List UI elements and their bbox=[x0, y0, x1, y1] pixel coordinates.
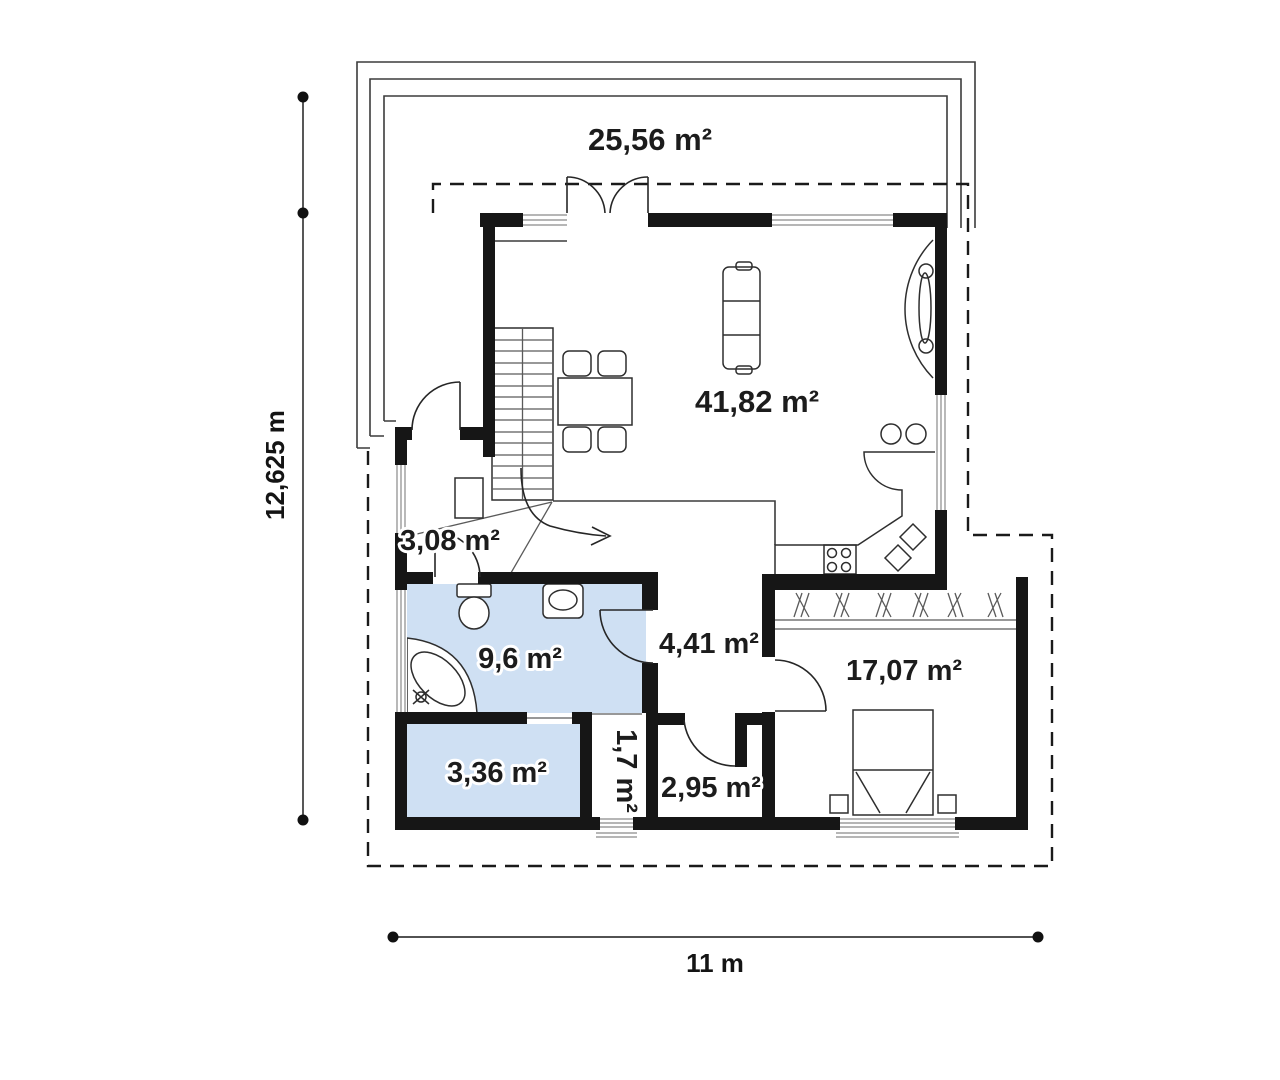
height-dimension-label: 12,625 m bbox=[260, 410, 290, 520]
window bbox=[395, 590, 407, 712]
window bbox=[772, 213, 893, 227]
bedroom-door bbox=[775, 660, 826, 711]
wc-door bbox=[684, 720, 735, 766]
closet-area-label: 1,7 m² bbox=[610, 729, 642, 813]
window bbox=[523, 213, 567, 227]
living-area-label: 41,82 m² bbox=[695, 384, 819, 419]
kitchen-sink bbox=[885, 545, 911, 571]
bathroom-area-label: 9,6 m² bbox=[478, 643, 562, 675]
bedroom-area-label: 17,07 m² bbox=[846, 655, 962, 687]
chair bbox=[598, 427, 626, 452]
vestibule-area-label: 3,08 m² bbox=[400, 525, 500, 557]
terrace-double-door bbox=[567, 177, 648, 213]
plant-decor bbox=[905, 240, 933, 378]
bar-stool bbox=[881, 424, 901, 444]
kitchen-counter bbox=[775, 424, 947, 574]
bed bbox=[853, 710, 933, 815]
wc-area-label: 2,95 m² bbox=[661, 772, 761, 804]
sofa bbox=[723, 262, 760, 374]
toilet bbox=[457, 584, 491, 597]
wardrobe-hangers bbox=[794, 593, 1003, 617]
duct-niche bbox=[455, 478, 483, 518]
storage-area-label: 3,36 m² bbox=[447, 757, 547, 789]
window bbox=[836, 817, 959, 837]
chair bbox=[563, 351, 591, 376]
wardrobe-rail bbox=[775, 620, 1016, 629]
terrace-outline bbox=[357, 62, 975, 448]
nightstand bbox=[938, 795, 956, 813]
terrace-area-label: 25,56 m² bbox=[588, 122, 712, 157]
bed-fold bbox=[856, 772, 930, 813]
dining-set bbox=[558, 351, 632, 452]
window bbox=[596, 817, 637, 837]
bar-stool bbox=[906, 424, 926, 444]
kitchen-sink bbox=[900, 524, 926, 550]
window bbox=[395, 465, 407, 533]
floor-plan: 25,56 m² 41,82 m² 3,08 m² 9,6 m² 4,41 m²… bbox=[0, 0, 1280, 1080]
chair bbox=[563, 427, 591, 452]
dining-table bbox=[558, 378, 632, 425]
toilet-bowl bbox=[459, 597, 489, 629]
width-dimension-label: 11 m bbox=[686, 948, 744, 978]
chair bbox=[598, 351, 626, 376]
labels: 25,56 m² 41,82 m² 3,08 m² 9,6 m² 4,41 m²… bbox=[260, 122, 962, 978]
entry-door bbox=[412, 382, 460, 430]
bedroom-furniture bbox=[775, 593, 1016, 815]
floor-plan-page: 25,56 m² 41,82 m² 3,08 m² 9,6 m² 4,41 m²… bbox=[0, 0, 1280, 1080]
window bbox=[935, 395, 947, 510]
hall-area-label: 4,41 m² bbox=[659, 628, 759, 660]
nightstand bbox=[830, 795, 848, 813]
